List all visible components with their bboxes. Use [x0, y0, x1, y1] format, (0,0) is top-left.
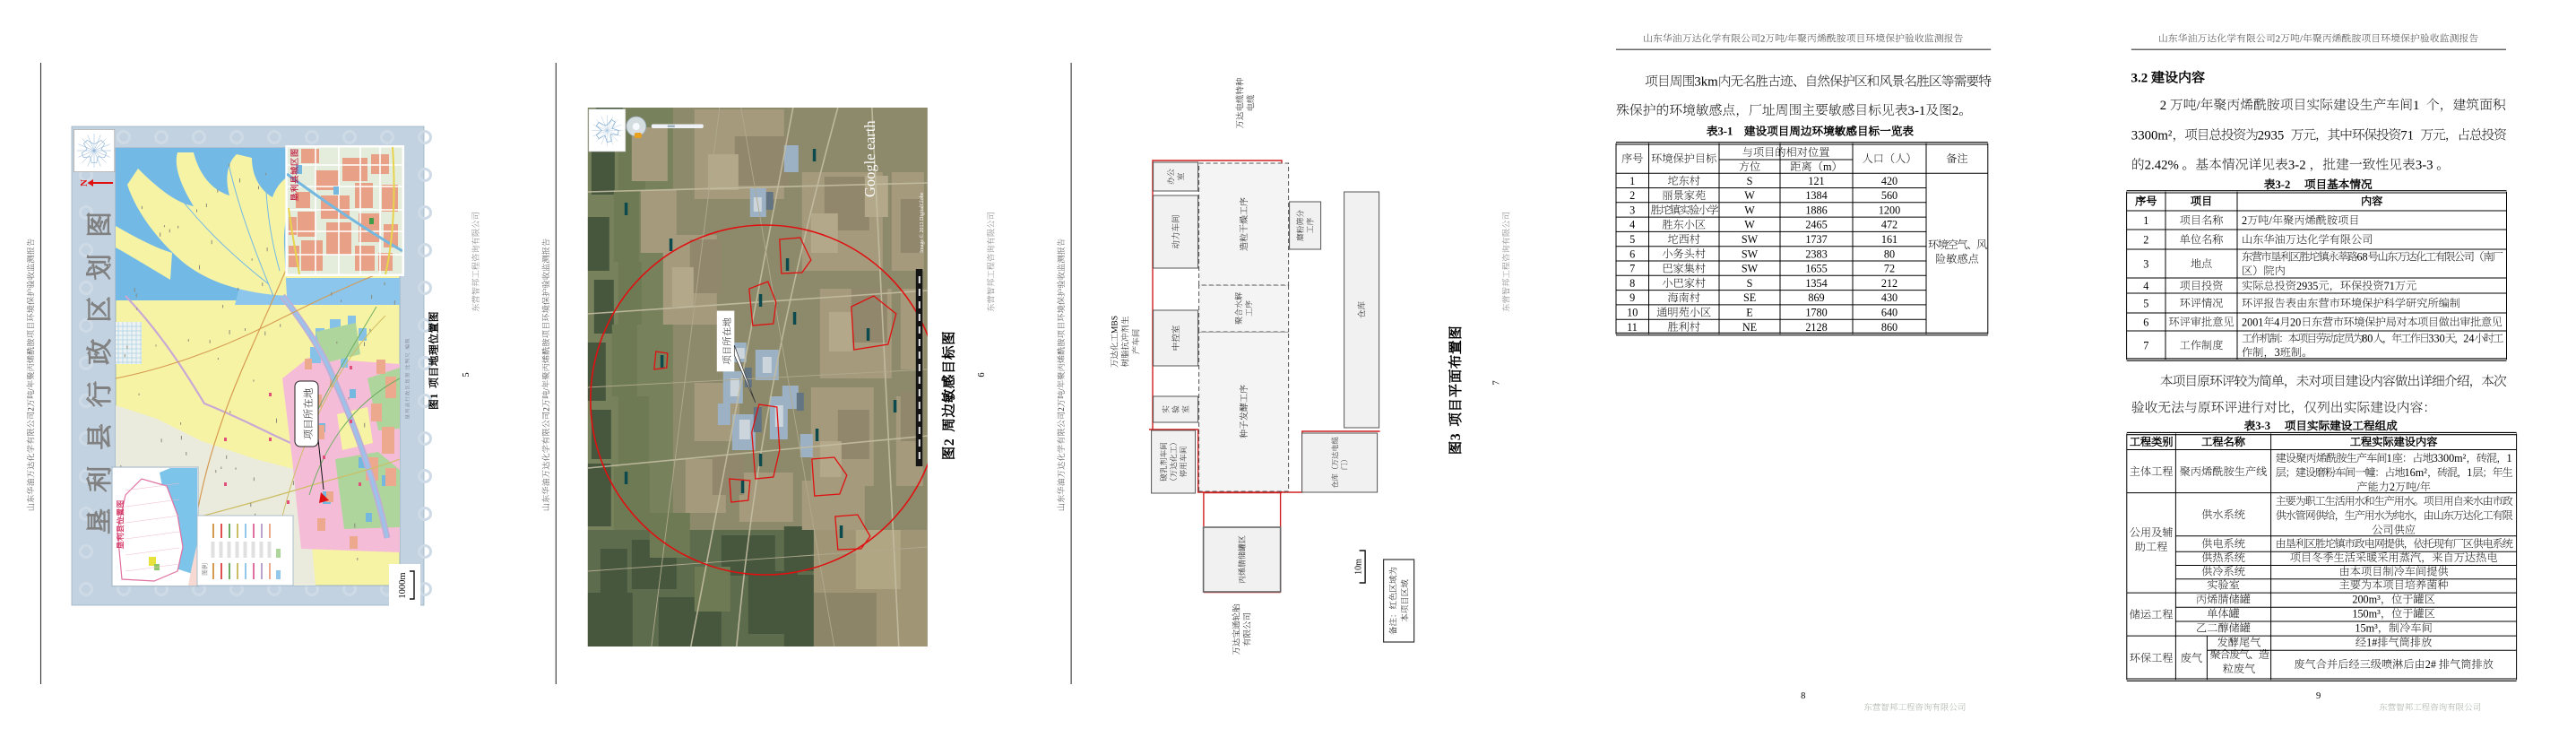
- svg-text:9: 9: [1629, 291, 1635, 304]
- svg-text:3300m²: 3300m²: [2433, 452, 2467, 464]
- svg-text:2: 2: [2160, 99, 2166, 113]
- svg-text:W: W: [1744, 219, 1755, 231]
- svg-text:1: 1: [428, 394, 440, 399]
- svg-text:MBS: MBS: [1111, 316, 1120, 334]
- svg-text:150m³: 150m³: [2352, 608, 2381, 620]
- svg-text:161: 161: [1881, 233, 1897, 246]
- svg-text:200m³: 200m³: [2352, 594, 2381, 606]
- svg-text:5: 5: [2143, 297, 2148, 309]
- svg-text:2383: 2383: [1805, 247, 1827, 260]
- svg-text:1: 1: [2467, 466, 2472, 479]
- svg-text:3300m²: 3300m²: [2131, 128, 2173, 143]
- svg-text:80: 80: [2362, 333, 2373, 345]
- svg-text:16m²: 16m²: [2405, 466, 2428, 479]
- svg-text:3: 3: [2275, 346, 2280, 359]
- svg-text:m: m: [1823, 161, 1832, 173]
- svg-text:71: 71: [2384, 280, 2395, 292]
- svg-text:/: /: [541, 388, 550, 391]
- svg-text:1780: 1780: [1805, 307, 1827, 319]
- svg-text:S: S: [1747, 175, 1753, 187]
- svg-text:7: 7: [2143, 339, 2148, 351]
- svg-text:2935: 2935: [2258, 128, 2285, 143]
- svg-text:3.2: 3.2: [2131, 72, 2148, 86]
- svg-text:640: 640: [1881, 307, 1897, 319]
- svg-text:Image © 2013 DigitalGlobe: Image © 2013 DigitalGlobe: [919, 192, 925, 253]
- svg-text:472: 472: [1881, 219, 1897, 231]
- svg-text:2465: 2465: [1805, 219, 1827, 231]
- svg-text:1: 1: [2507, 452, 2512, 464]
- svg-text:3-2: 3-2: [2275, 178, 2290, 191]
- svg-text:3-1: 3-1: [1717, 126, 1733, 138]
- svg-text:NE: NE: [1742, 321, 1757, 334]
- svg-text:1: 1: [2143, 214, 2148, 227]
- svg-text:Google earth: Google earth: [861, 120, 878, 197]
- svg-text:SW: SW: [1742, 247, 1759, 260]
- svg-text:869: 869: [1808, 291, 1824, 304]
- svg-text:7: 7: [1492, 380, 1502, 385]
- svg-text:/: /: [2300, 34, 2303, 45]
- svg-text:6: 6: [1629, 247, 1635, 260]
- svg-text:1000m: 1000m: [398, 572, 408, 598]
- svg-text:3km: 3km: [1694, 75, 1718, 90]
- svg-text:1886: 1886: [1805, 204, 1827, 216]
- svg-text:1#: 1#: [2366, 637, 2377, 649]
- svg-text:5: 5: [462, 372, 471, 377]
- svg-text:6: 6: [2143, 316, 2148, 328]
- svg-text:11: 11: [1627, 321, 1638, 334]
- svg-text:4: 4: [2143, 280, 2148, 292]
- svg-text:3: 3: [1629, 204, 1635, 216]
- svg-text:10m: 10m: [1354, 559, 1364, 575]
- svg-text:1: 1: [2387, 452, 2392, 464]
- svg-text:1: 1: [1629, 175, 1635, 187]
- svg-text:1200: 1200: [1879, 204, 1900, 216]
- svg-text:2: 2: [942, 438, 957, 446]
- svg-text:3-2: 3-2: [2288, 159, 2306, 173]
- svg-text:W: W: [1744, 204, 1755, 216]
- svg-text:6: 6: [977, 372, 987, 377]
- svg-text:E: E: [1746, 307, 1752, 319]
- svg-text:560: 560: [1881, 189, 1897, 202]
- svg-text:2: 2: [2143, 233, 2148, 246]
- svg-text:SE: SE: [1743, 291, 1756, 304]
- svg-text:71: 71: [2400, 128, 2414, 143]
- svg-text:2: 2: [2390, 481, 2395, 493]
- svg-text:1655: 1655: [1805, 263, 1827, 275]
- svg-text:8: 8: [1801, 691, 1805, 701]
- svg-text:9: 9: [2316, 691, 2321, 701]
- svg-text:2128: 2128: [1805, 321, 1827, 334]
- svg-text:/: /: [2197, 99, 2201, 113]
- svg-text:3-3: 3-3: [2416, 159, 2433, 173]
- svg-text:/: /: [2269, 214, 2273, 227]
- svg-text:2935: 2935: [2296, 280, 2318, 292]
- svg-text:2#: 2#: [2425, 658, 2436, 671]
- svg-text:24: 24: [2463, 333, 2474, 345]
- svg-text:2: 2: [1952, 104, 1958, 118]
- svg-text:3-1: 3-1: [1908, 104, 1926, 118]
- svg-text:3-3: 3-3: [2255, 420, 2270, 432]
- svg-text:1384: 1384: [1805, 189, 1827, 202]
- svg-text:8: 8: [1629, 277, 1635, 290]
- svg-text:860: 860: [1881, 321, 1897, 334]
- svg-text:20: 20: [2290, 316, 2301, 328]
- svg-text:430: 430: [1881, 291, 1897, 304]
- svg-text:2.42%: 2.42%: [2145, 159, 2179, 173]
- svg-text:SW: SW: [1742, 233, 1759, 246]
- svg-text:15m³: 15m³: [2355, 622, 2378, 635]
- svg-text:/: /: [2416, 481, 2420, 493]
- svg-text:2: 2: [1760, 34, 1765, 45]
- svg-text:1737: 1737: [1805, 233, 1827, 246]
- svg-text:2: 2: [1629, 189, 1635, 202]
- svg-text:/: /: [1057, 388, 1066, 391]
- svg-text:S: S: [1747, 277, 1753, 290]
- svg-text:5: 5: [1629, 233, 1635, 246]
- svg-text:2001: 2001: [2242, 316, 2263, 328]
- svg-text:3: 3: [1448, 433, 1464, 440]
- svg-text:7: 7: [1629, 263, 1635, 275]
- svg-text:330: 330: [2428, 333, 2444, 345]
- svg-text:68: 68: [2356, 251, 2367, 264]
- svg-text:2: 2: [541, 407, 550, 412]
- svg-text:/: /: [1785, 34, 1787, 45]
- svg-text:2: 2: [2276, 34, 2280, 45]
- svg-text:4: 4: [2274, 316, 2279, 328]
- svg-text:/: /: [27, 388, 36, 391]
- svg-text:SW: SW: [1742, 263, 1759, 275]
- svg-text:1354: 1354: [1805, 277, 1827, 290]
- svg-text:1: 1: [2413, 99, 2419, 113]
- svg-text:212: 212: [1881, 277, 1897, 290]
- svg-text:420: 420: [1881, 175, 1897, 187]
- svg-text:72: 72: [1884, 263, 1895, 275]
- svg-text:2: 2: [2242, 214, 2247, 227]
- svg-text:2: 2: [1057, 407, 1066, 412]
- svg-text:W: W: [1744, 189, 1755, 202]
- svg-text:3: 3: [2143, 257, 2148, 270]
- svg-text:80: 80: [1884, 247, 1895, 260]
- svg-text:4: 4: [1629, 219, 1635, 231]
- svg-text:2: 2: [27, 407, 36, 412]
- svg-text:121: 121: [1808, 175, 1824, 187]
- svg-text:10: 10: [1627, 307, 1638, 319]
